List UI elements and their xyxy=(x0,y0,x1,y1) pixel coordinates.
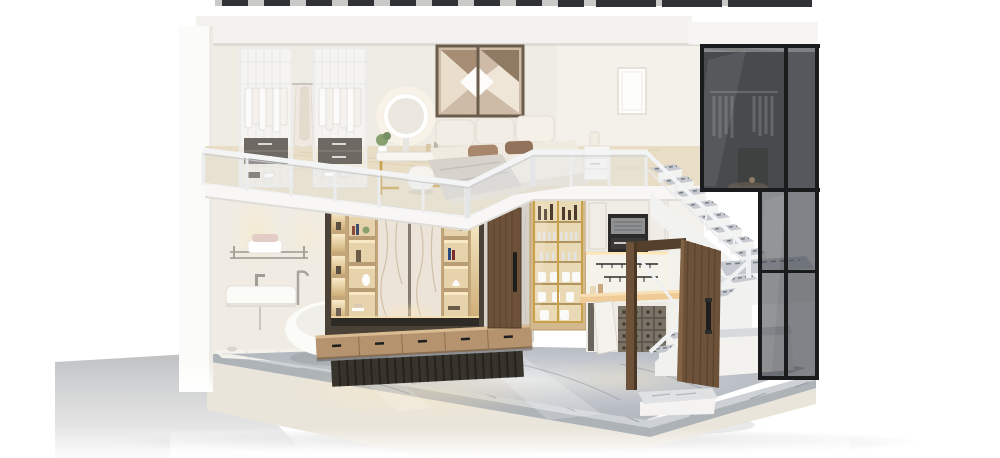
interior-door xyxy=(488,208,521,328)
vanity-mirror xyxy=(386,96,426,136)
wood-shelf-column-left xyxy=(348,212,376,320)
marble-panels xyxy=(378,212,441,322)
feature-wall-shadow-gap xyxy=(331,318,479,326)
towel-pink xyxy=(252,234,278,242)
glass-panel-right-soft xyxy=(786,48,816,378)
roof-strip-base xyxy=(215,0,812,6)
display-cabinet xyxy=(528,194,588,330)
door-step xyxy=(638,388,718,416)
floor-drain xyxy=(227,347,237,352)
entry-door-handle xyxy=(705,298,712,334)
hanging-clothes-b xyxy=(319,88,361,132)
exterior-left-wall xyxy=(179,26,213,392)
interior-door-handle xyxy=(513,252,517,292)
lit-niche-column-left xyxy=(332,212,345,318)
hanging-robes xyxy=(292,83,314,148)
loft-render xyxy=(0,0,1000,458)
headboard-cushion-1 xyxy=(436,120,474,146)
ceiling-slab xyxy=(196,16,692,46)
nightstand-lamp xyxy=(590,132,599,146)
geometric-wall-mirror xyxy=(437,46,523,116)
headboard-cushion-2 xyxy=(476,118,514,144)
headboard-cushion-3 xyxy=(516,116,554,142)
